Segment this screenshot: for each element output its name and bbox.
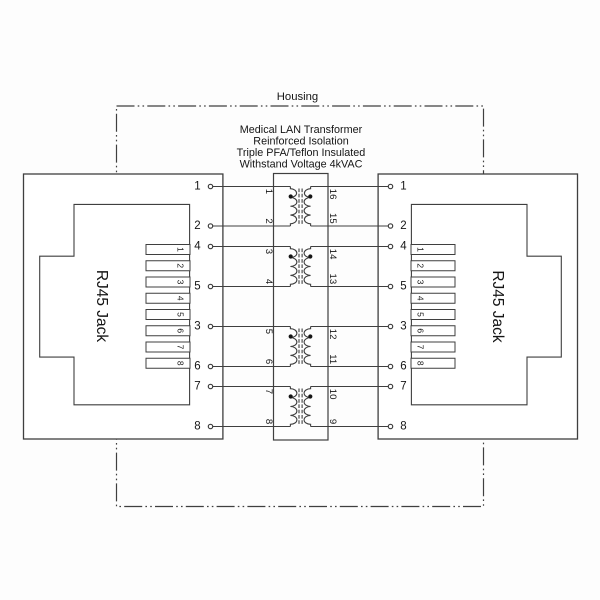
svg-text:2: 2 (263, 218, 274, 223)
svg-text:7: 7 (263, 389, 274, 394)
svg-text:5: 5 (263, 329, 274, 334)
svg-text:4: 4 (416, 296, 426, 301)
svg-text:10: 10 (327, 389, 338, 400)
svg-text:6: 6 (176, 328, 186, 333)
svg-text:6: 6 (194, 361, 200, 373)
svg-text:6: 6 (400, 361, 406, 373)
svg-text:3: 3 (263, 249, 274, 254)
svg-text:2: 2 (400, 220, 406, 232)
svg-text:5: 5 (416, 312, 426, 317)
svg-text:1: 1 (263, 189, 274, 194)
svg-text:7: 7 (400, 381, 406, 393)
svg-text:4: 4 (263, 279, 274, 285)
svg-text:Housing: Housing (277, 91, 318, 103)
svg-text:Triple PFA/Teflon Insulated: Triple PFA/Teflon Insulated (237, 147, 366, 159)
svg-text:14: 14 (327, 249, 338, 260)
svg-text:4: 4 (176, 296, 186, 301)
svg-text:1: 1 (400, 181, 406, 193)
svg-text:7: 7 (194, 381, 200, 393)
svg-text:5: 5 (194, 281, 200, 293)
svg-text:2: 2 (176, 263, 186, 268)
svg-text:8: 8 (263, 419, 274, 424)
svg-text:13: 13 (327, 274, 338, 285)
svg-text:15: 15 (327, 213, 338, 224)
svg-text:12: 12 (327, 329, 338, 340)
svg-text:2: 2 (194, 220, 200, 232)
svg-text:1: 1 (194, 181, 200, 193)
svg-text:Medical LAN Transformer: Medical LAN Transformer (240, 124, 363, 136)
svg-text:4: 4 (194, 241, 201, 253)
svg-text:4: 4 (400, 241, 407, 253)
svg-text:Withstand Voltage 4kVAC: Withstand Voltage 4kVAC (240, 159, 363, 171)
svg-text:7: 7 (416, 345, 426, 350)
svg-text:3: 3 (416, 280, 426, 285)
svg-text:8: 8 (176, 361, 186, 366)
svg-text:RJ45 Jack: RJ45 Jack (489, 270, 506, 343)
svg-text:5: 5 (400, 281, 406, 293)
svg-text:11: 11 (327, 354, 338, 364)
svg-text:3: 3 (400, 321, 406, 333)
svg-text:Reinforced Isolation: Reinforced Isolation (253, 136, 348, 148)
svg-text:6: 6 (416, 328, 426, 333)
svg-text:1: 1 (416, 247, 426, 252)
svg-text:1: 1 (176, 247, 186, 252)
svg-text:5: 5 (176, 312, 186, 317)
svg-text:3: 3 (176, 280, 186, 285)
svg-text:7: 7 (176, 345, 186, 350)
svg-text:3: 3 (194, 321, 200, 333)
svg-text:8: 8 (400, 421, 406, 433)
svg-text:8: 8 (194, 421, 200, 433)
svg-text:9: 9 (327, 419, 338, 424)
svg-text:2: 2 (416, 263, 426, 268)
svg-text:8: 8 (416, 361, 426, 366)
svg-text:16: 16 (327, 189, 338, 200)
svg-text:6: 6 (263, 359, 274, 364)
svg-text:RJ45 Jack: RJ45 Jack (93, 270, 110, 343)
